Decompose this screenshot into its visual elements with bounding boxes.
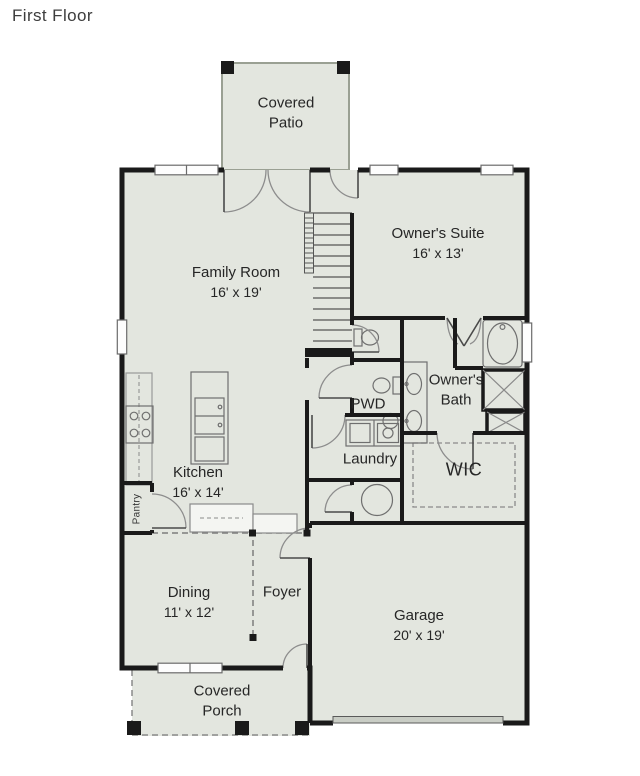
covered-porch-name: Covered Porch (184, 682, 260, 721)
family-room-label: Family Room 16' x 19' (192, 263, 280, 301)
pantry-label: Pantry (131, 494, 144, 525)
garage-name: Garage (393, 606, 444, 626)
garage-label: Garage 20' x 19' (393, 606, 444, 644)
foyer-name: Foyer (263, 582, 301, 602)
dining-name: Dining (164, 583, 214, 603)
covered-patio-name: Covered Patio (248, 94, 324, 133)
owners-bath-label: Owner's Bath (418, 371, 494, 410)
family-room-name: Family Room (192, 263, 280, 283)
owners-suite-name: Owner's Suite (392, 224, 485, 244)
kitchen-dims: 16' x 14' (172, 483, 223, 501)
dining-dims: 11' x 12' (164, 603, 214, 621)
dining-label: Dining 11' x 12' (164, 583, 214, 621)
covered-porch-label: Covered Porch (184, 682, 260, 721)
pantry-name: Pantry (131, 494, 144, 525)
pwd-name: PWD (351, 394, 386, 414)
owners-bath-name: Owner's Bath (418, 371, 494, 410)
garage-door (333, 717, 503, 724)
wic-label: WIC (446, 458, 483, 481)
garage-dims: 20' x 19' (393, 626, 444, 644)
wic-name: WIC (446, 458, 483, 481)
owners-suite-dims: 16' x 13' (392, 244, 485, 262)
foyer-label: Foyer (263, 582, 301, 602)
pwd-label: PWD (351, 394, 386, 414)
owners-suite-label: Owner's Suite 16' x 13' (392, 224, 485, 262)
kitchen-name: Kitchen (172, 463, 223, 483)
family-room-dims: 16' x 19' (192, 283, 280, 301)
kitchen-label: Kitchen 16' x 14' (172, 463, 223, 501)
laundry-label: Laundry (343, 449, 397, 469)
covered-patio-label: Covered Patio (248, 94, 324, 133)
laundry-name: Laundry (343, 449, 397, 469)
floor-plan: First Floor (0, 0, 640, 776)
